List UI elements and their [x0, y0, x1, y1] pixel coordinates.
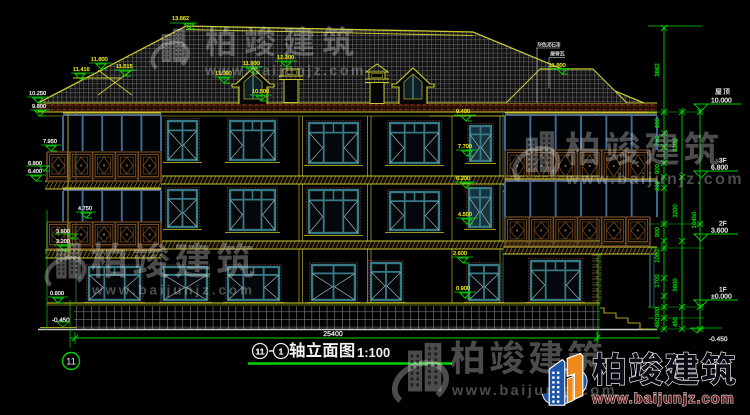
- svg-text:11.800: 11.800: [91, 57, 108, 63]
- svg-text:10.000: 10.000: [711, 98, 732, 105]
- svg-text:4.500: 4.500: [458, 212, 472, 218]
- svg-text:1F: 1F: [719, 287, 727, 294]
- svg-text:0.600: 0.600: [50, 291, 64, 297]
- svg-text:0.900: 0.900: [456, 286, 470, 292]
- svg-text:450: 450: [654, 317, 661, 328]
- svg-text:7.950: 7.950: [43, 139, 57, 145]
- svg-text:www.baijunjz.com: www.baijunjz.com: [204, 62, 366, 78]
- svg-text:2F: 2F: [719, 221, 727, 228]
- svg-text:±0.000: ±0.000: [711, 294, 732, 301]
- svg-text:9.400: 9.400: [456, 109, 470, 115]
- svg-text:3600: 3600: [672, 278, 679, 292]
- svg-text:1000: 1000: [654, 249, 661, 263]
- svg-text:www.baijunjz.com: www.baijunjz.com: [91, 283, 255, 298]
- svg-text:6.200: 6.200: [456, 176, 470, 182]
- svg-text:9.800: 9.800: [32, 104, 46, 110]
- svg-text:-0.450: -0.450: [709, 336, 728, 343]
- svg-text:11.800: 11.800: [549, 63, 566, 69]
- svg-text:www.baijunjz.com: www.baijunjz.com: [591, 391, 735, 407]
- svg-text:10.500: 10.500: [252, 89, 269, 95]
- svg-text:600: 600: [654, 117, 661, 128]
- svg-text:12.300: 12.300: [277, 55, 294, 61]
- svg-text:10450: 10450: [691, 211, 698, 228]
- svg-text:13.662: 13.662: [172, 16, 189, 22]
- svg-text:1: 1: [279, 347, 284, 357]
- svg-text:2.600: 2.600: [453, 251, 467, 257]
- svg-text:7.700: 7.700: [458, 144, 472, 150]
- svg-text:11.416: 11.416: [73, 67, 90, 73]
- svg-text:900: 900: [654, 226, 661, 237]
- svg-text:25400: 25400: [323, 331, 343, 338]
- svg-text:11: 11: [256, 347, 265, 357]
- svg-text:3.600: 3.600: [711, 228, 728, 235]
- svg-text:450: 450: [672, 316, 679, 327]
- svg-text:900: 900: [654, 306, 661, 317]
- svg-text:1700: 1700: [654, 274, 661, 288]
- svg-text:6.400: 6.400: [28, 169, 42, 175]
- svg-text:1:100: 1:100: [357, 345, 390, 360]
- svg-text:10.250: 10.250: [29, 91, 46, 97]
- svg-text:3F: 3F: [719, 158, 727, 165]
- svg-text:3.200: 3.200: [56, 239, 70, 245]
- svg-text:3200: 3200: [672, 204, 679, 218]
- svg-text:3662: 3662: [654, 63, 661, 77]
- svg-text:11.515: 11.515: [116, 64, 133, 70]
- svg-text:11: 11: [66, 357, 76, 368]
- svg-text:www.baijunjz.com: www.baijunjz.com: [565, 171, 744, 188]
- svg-text:4.750: 4.750: [78, 206, 92, 212]
